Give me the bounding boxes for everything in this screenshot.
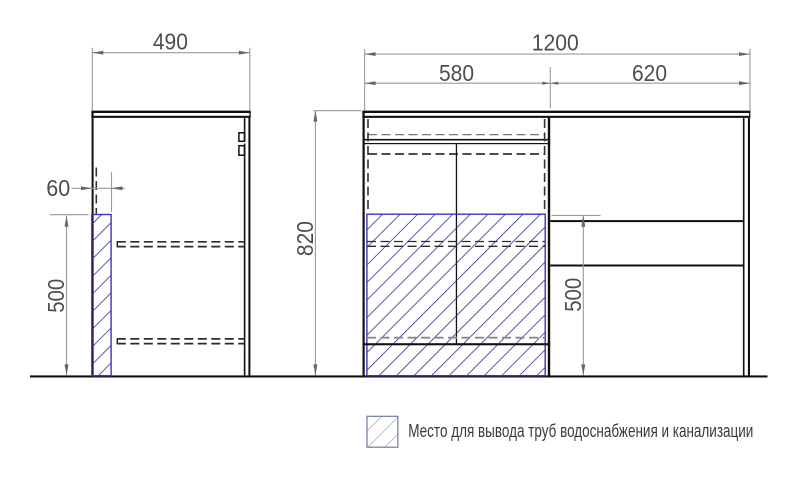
svg-text:60: 60: [46, 175, 70, 201]
svg-text:1200: 1200: [532, 29, 579, 55]
svg-text:620: 620: [632, 60, 667, 86]
svg-text:500: 500: [560, 278, 586, 312]
svg-text:820: 820: [292, 221, 318, 256]
svg-text:580: 580: [439, 60, 474, 86]
svg-text:500: 500: [43, 279, 69, 313]
svg-text:Место для вывода труб водоснаб: Место для вывода труб водоснабжения и ка…: [408, 420, 753, 441]
svg-text:490: 490: [153, 29, 188, 55]
